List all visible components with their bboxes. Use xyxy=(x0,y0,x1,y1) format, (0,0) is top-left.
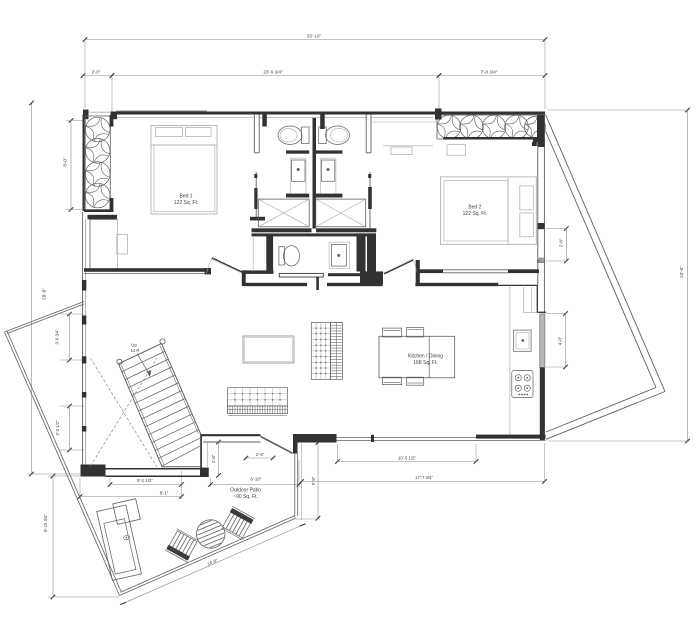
svg-text:23'-9 3/4": 23'-9 3/4" xyxy=(263,70,283,75)
svg-text:Kitchen / Dining: Kitchen / Dining xyxy=(408,353,443,359)
svg-text:122 Sq. Ft.: 122 Sq. Ft. xyxy=(174,200,198,206)
svg-text:3'-0 1/2": 3'-0 1/2" xyxy=(55,420,60,436)
svg-text:2'-8": 2'-8" xyxy=(559,238,564,247)
svg-text:168 Sq. Ft.: 168 Sq. Ft. xyxy=(413,360,437,366)
svg-text:8'-0": 8'-0" xyxy=(63,157,68,167)
svg-text:Bed 2: Bed 2 xyxy=(468,205,481,211)
svg-text:2'-6": 2'-6" xyxy=(256,452,265,457)
svg-text:6'-10": 6'-10" xyxy=(251,477,262,482)
svg-text:7'-8 3/4": 7'-8 3/4" xyxy=(481,70,498,75)
svg-text:2'-8": 2'-8" xyxy=(211,454,216,463)
svg-text:Outdoor Patio: Outdoor Patio xyxy=(230,488,261,494)
svg-text:8'-1 1/2": 8'-1 1/2" xyxy=(137,478,153,483)
svg-text:33'-10": 33'-10" xyxy=(307,34,322,39)
svg-text:Bed 1: Bed 1 xyxy=(179,194,192,200)
svg-text:~90 Sq. Ft.: ~90 Sq. Ft. xyxy=(233,494,258,500)
svg-text:5'-8": 5'-8" xyxy=(311,476,316,485)
svg-text:3'-0 3/4": 3'-0 3/4" xyxy=(55,329,60,345)
svg-text:8'-10 3/4": 8'-10 3/4" xyxy=(43,514,48,532)
svg-text:14 R: 14 R xyxy=(131,348,140,353)
svg-text:28'-8": 28'-8" xyxy=(42,288,47,300)
svg-text:24'-0": 24'-0" xyxy=(679,266,684,278)
svg-text:4'-0": 4'-0" xyxy=(558,336,563,345)
svg-text:10'-5 1/2": 10'-5 1/2" xyxy=(398,455,417,460)
svg-text:122 Sq. Ft.: 122 Sq. Ft. xyxy=(463,211,487,217)
svg-text:2'-0": 2'-0" xyxy=(92,70,101,75)
svg-text:8'-1": 8'-1" xyxy=(160,491,169,496)
svg-text:Up: Up xyxy=(131,343,137,348)
svg-text:17'-7 3/4": 17'-7 3/4" xyxy=(415,475,434,480)
